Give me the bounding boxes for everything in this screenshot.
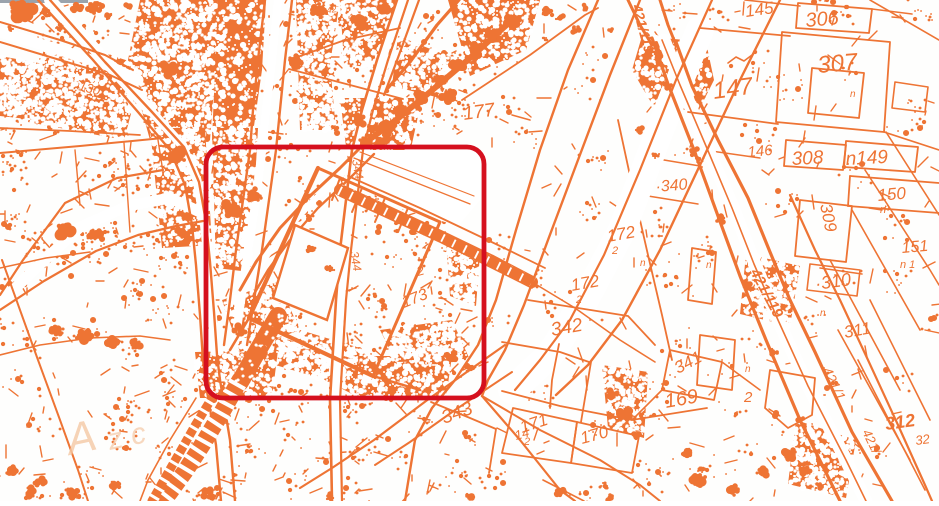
svg-text:306: 306 [805, 7, 841, 32]
svg-text:2: 2 [743, 389, 753, 406]
svg-text:n: n [820, 308, 826, 319]
svg-text:2: 2 [575, 294, 582, 306]
svg-text:142: 142 [321, 4, 337, 16]
svg-text:32: 32 [914, 431, 931, 448]
svg-text:146: 146 [747, 142, 774, 161]
svg-text:312: 312 [884, 410, 917, 434]
svg-text:n: n [745, 364, 751, 375]
svg-text:308: 308 [791, 147, 824, 170]
svg-text:n 1: n 1 [900, 259, 915, 271]
svg-text:151: 151 [901, 238, 929, 257]
svg-text:n: n [640, 258, 646, 269]
svg-text:147: 147 [711, 72, 756, 105]
svg-text:150: 150 [877, 184, 907, 205]
svg-text:2: 2 [611, 245, 618, 257]
svg-text:n: n [884, 203, 890, 214]
svg-text:307: 307 [816, 48, 860, 79]
svg-text:n: n [850, 89, 856, 100]
svg-text:n: n [706, 260, 712, 271]
svg-text:n149: n149 [845, 147, 889, 170]
svg-text:·340: ·340 [655, 176, 688, 196]
